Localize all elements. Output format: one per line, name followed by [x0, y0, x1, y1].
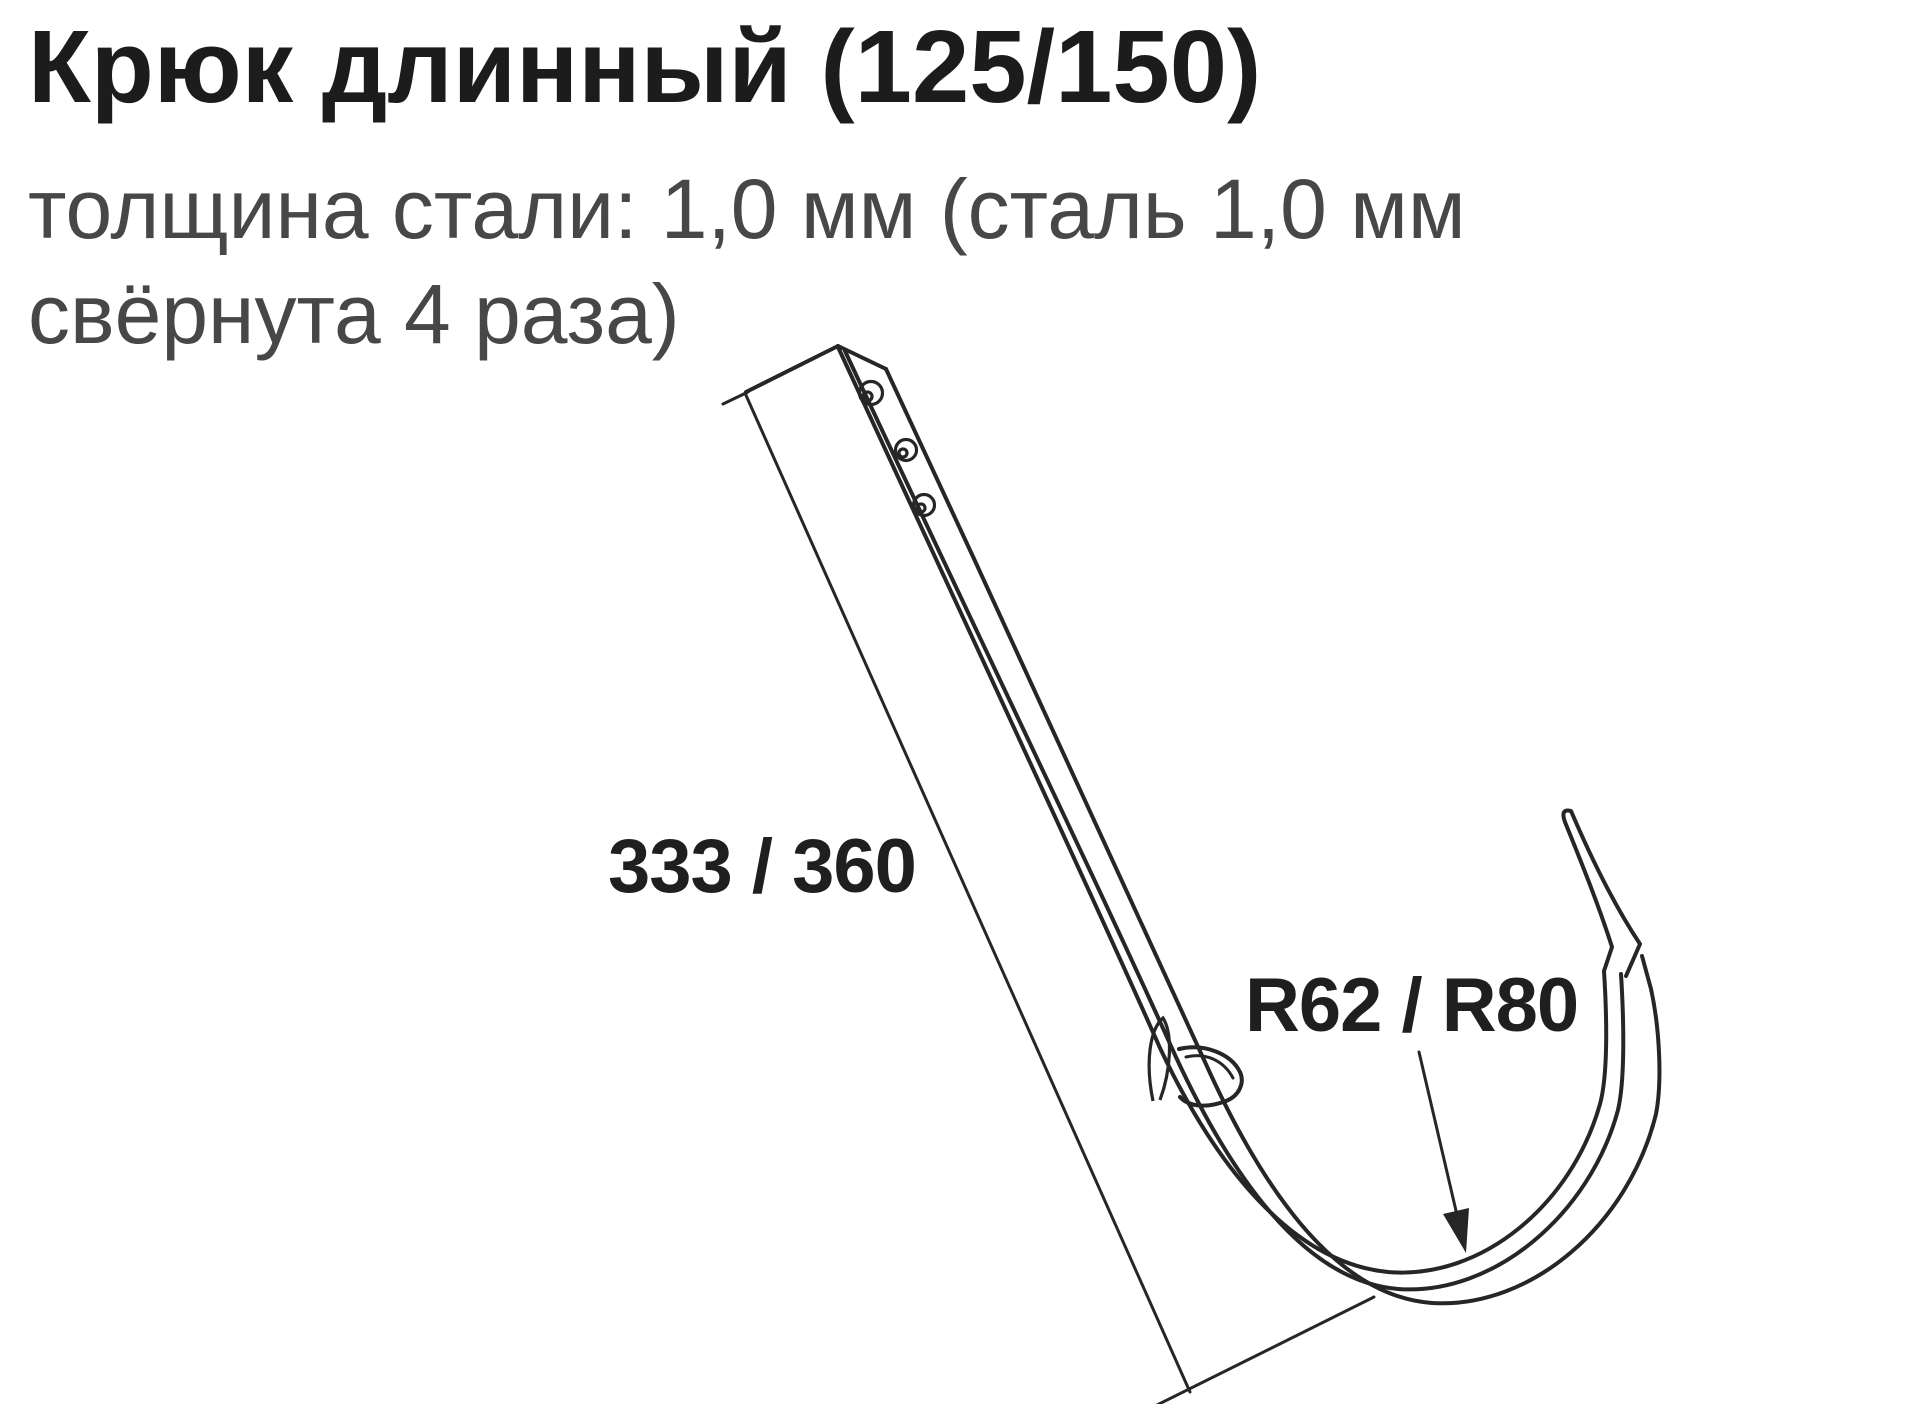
strap-top-edge	[746, 346, 838, 392]
strap-mid-edge	[845, 351, 1623, 1289]
screw-hole-3-inner	[917, 504, 925, 512]
radius-arrowhead	[1443, 1208, 1469, 1253]
strap-inner-edge	[838, 347, 1606, 1273]
hook-technical-drawing	[0, 0, 1920, 1404]
bead-notch	[1642, 956, 1651, 989]
length-dimension-label: 333 / 360	[608, 829, 916, 905]
hook-claw-tip	[1563, 810, 1640, 976]
screw-hole-2-inner	[899, 449, 907, 457]
radius-arrow	[1419, 1052, 1469, 1253]
radius-arrow-line	[1419, 1052, 1457, 1215]
radius-dimension-label: R62 / R80	[1245, 968, 1578, 1044]
extension-tick-bottom	[1147, 1297, 1374, 1404]
strap-outer-edge	[886, 369, 1659, 1303]
drawing-canvas: Крюк длинный (125/150) толщина стали: 1,…	[0, 0, 1920, 1404]
